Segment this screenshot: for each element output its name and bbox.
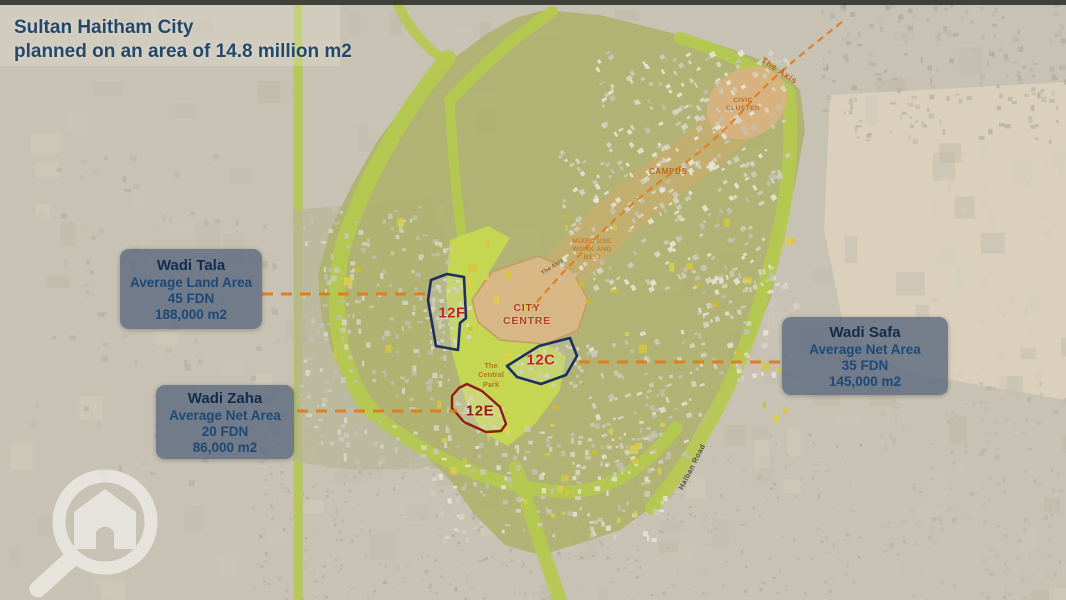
title-line-2: planned on an area of 14.8 million m2 (14, 40, 352, 64)
civic-cluster-line1: CIVIC (726, 97, 760, 105)
central-park-line2: Central (478, 370, 504, 379)
zone-label-12f: 12F (438, 305, 465, 324)
info-box-area-type: Average Land Area (130, 275, 252, 290)
info-box-wadi-zaha: Wadi Zaha Average Net Area 20 FDN 86,000… (156, 385, 294, 459)
civic-cluster-label: CIVIC CLUSTER (726, 97, 760, 113)
info-box-fdn: 45 FDN (168, 291, 215, 306)
info-box-fdn: 35 FDN (842, 358, 889, 373)
masterplan-map: Sultan Haitham City planned on an area o… (0, 0, 1066, 600)
mixed-use-line2: WORK AND (572, 246, 611, 254)
zone-label-12e: 12E (466, 403, 494, 422)
info-box-wadi-safa: Wadi Safa Average Net Area 35 FDN 145,00… (782, 317, 948, 395)
page-title: Sultan Haitham City planned on an area o… (14, 16, 352, 65)
city-centre-line2: CENTRE (503, 315, 551, 328)
title-line-1: Sultan Haitham City (14, 16, 352, 40)
info-box-title: Wadi Safa (829, 324, 900, 341)
top-border-strip (0, 0, 1066, 5)
mixed-use-line1: MIXED USE (572, 238, 611, 246)
central-park-line1: The (478, 361, 504, 370)
central-park-label: The Central Park (478, 361, 504, 389)
mixed-use-line3: RESI (572, 254, 611, 262)
central-park-line3: Park (478, 380, 504, 389)
civic-cluster-line2: CLUSTER (726, 105, 760, 113)
campus-label: CAMPUS (649, 167, 687, 177)
city-centre-label: CITY CENTRE (503, 302, 551, 328)
info-box-area-type: Average Net Area (809, 342, 921, 357)
info-box-area: 86,000 m2 (193, 440, 258, 455)
info-box-title: Wadi Tala (157, 257, 225, 274)
info-box-wadi-tala: Wadi Tala Average Land Area 45 FDN 188,0… (120, 249, 262, 329)
info-box-area: 188,000 m2 (155, 307, 227, 322)
city-centre-line1: CITY (503, 302, 551, 315)
zone-label-12c: 12C (526, 352, 555, 371)
info-box-title: Wadi Zaha (188, 390, 262, 407)
info-box-area-type: Average Net Area (169, 408, 281, 423)
mixed-use-label: MIXED USE WORK AND RESI (572, 238, 611, 262)
info-box-fdn: 20 FDN (202, 424, 249, 439)
info-box-area: 145,000 m2 (829, 374, 901, 389)
